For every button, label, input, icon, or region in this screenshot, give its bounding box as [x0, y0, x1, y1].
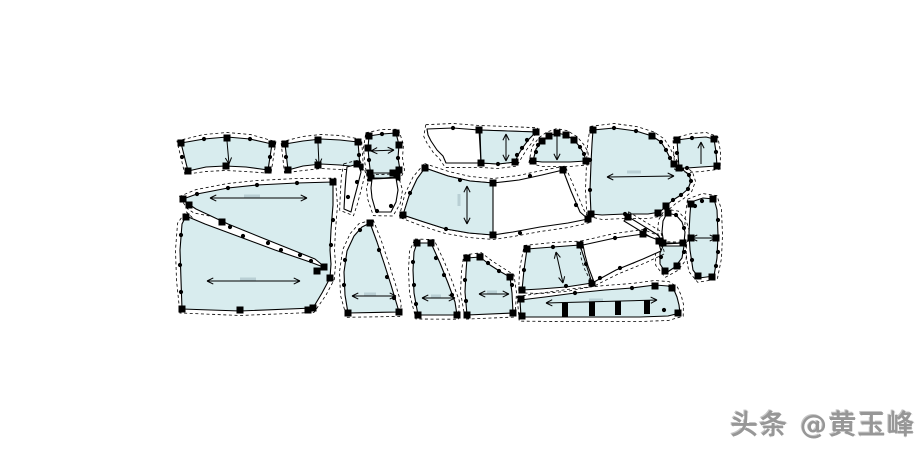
pattern-piece-top-right-small[interactable] — [673, 133, 721, 173]
control-point-handle[interactable] — [560, 167, 567, 174]
control-point-handle[interactable] — [393, 130, 400, 137]
control-point-handle[interactable] — [490, 180, 497, 187]
pattern-piece-hem-band[interactable] — [581, 230, 665, 287]
control-point-handle[interactable] — [695, 273, 702, 280]
piece-outline[interactable] — [285, 139, 360, 170]
control-point-handle[interactable] — [649, 133, 656, 140]
curve-point[interactable] — [375, 209, 379, 213]
control-point-handle[interactable] — [366, 133, 373, 140]
curve-point[interactable] — [510, 283, 514, 287]
pattern-piece-gore-2[interactable] — [409, 239, 461, 319]
curve-point[interactable] — [525, 138, 529, 142]
pattern-piece-gore-1[interactable] — [340, 220, 403, 318]
control-point-handle[interactable] — [478, 160, 485, 167]
control-point-handle[interactable] — [183, 214, 190, 221]
control-point-handle[interactable] — [662, 268, 669, 275]
curve-point[interactable] — [284, 155, 288, 159]
control-point-handle[interactable] — [711, 136, 718, 143]
control-point-handle[interactable] — [265, 167, 272, 174]
control-point-handle[interactable] — [490, 232, 497, 239]
pattern-piece-waistband-left[interactable] — [177, 133, 276, 175]
control-point-handle[interactable] — [415, 312, 422, 319]
control-point-handle[interactable] — [219, 219, 226, 226]
control-point-handle[interactable] — [315, 137, 322, 144]
control-point-handle[interactable] — [476, 127, 483, 134]
control-point-handle[interactable] — [563, 132, 570, 139]
curve-point[interactable] — [564, 284, 568, 288]
control-point-handle[interactable] — [330, 179, 337, 186]
pattern-layout: 头条 @黄玉峰 — [0, 0, 922, 450]
control-point-handle[interactable] — [669, 285, 676, 292]
control-point-handle[interactable] — [315, 162, 322, 169]
piece-label-smudge — [431, 295, 441, 298]
curve-point[interactable] — [630, 286, 634, 290]
curve-point[interactable] — [664, 148, 668, 152]
pattern-piece-front-upper[interactable] — [424, 124, 540, 169]
control-point-handle[interactable] — [519, 287, 526, 294]
control-point-handle[interactable] — [590, 127, 597, 134]
piece-outline[interactable] — [662, 213, 685, 244]
piece-outline[interactable] — [371, 178, 398, 212]
curve-point[interactable] — [486, 261, 490, 265]
control-point-handle[interactable] — [688, 201, 695, 208]
curve-point[interactable] — [329, 243, 333, 247]
control-point-handle[interactable] — [428, 240, 435, 247]
control-point-handle[interactable] — [652, 283, 659, 290]
control-point-handle[interactable] — [539, 138, 546, 145]
curve-point[interactable] — [497, 269, 501, 273]
control-point-handle[interactable] — [327, 275, 334, 282]
piece-subregion — [403, 168, 493, 235]
curve-point[interactable] — [342, 283, 346, 287]
control-point-handle[interactable] — [464, 255, 471, 262]
pattern-canvas — [0, 0, 922, 450]
curve-point[interactable] — [442, 273, 446, 277]
curve-point[interactable] — [180, 155, 184, 159]
control-point-handle[interactable] — [396, 167, 403, 174]
curve-point[interactable] — [682, 226, 686, 230]
curve-point[interactable] — [412, 283, 416, 287]
pattern-piece-gore-3[interactable] — [461, 253, 517, 319]
control-point-handle[interactable] — [178, 140, 185, 147]
control-point-handle[interactable] — [422, 165, 429, 172]
piece-outline[interactable] — [344, 223, 399, 313]
control-point-handle[interactable] — [519, 313, 526, 320]
curve-point[interactable] — [414, 302, 418, 306]
curve-point[interactable] — [573, 291, 577, 295]
control-point-handle[interactable] — [546, 133, 553, 140]
control-point-handle[interactable] — [180, 196, 187, 203]
curve-point[interactable] — [690, 136, 694, 140]
control-point-handle[interactable] — [269, 141, 276, 148]
control-point-handle[interactable] — [314, 268, 321, 275]
control-point-handle[interactable] — [674, 137, 681, 144]
curve-point[interactable] — [659, 255, 663, 259]
control-point-handle[interactable] — [656, 238, 663, 245]
control-point-handle[interactable] — [512, 159, 519, 166]
control-point-handle[interactable] — [674, 263, 681, 270]
curve-point[interactable] — [195, 192, 199, 196]
control-point-handle[interactable] — [507, 274, 514, 281]
curve-point[interactable] — [682, 250, 686, 254]
curve-point[interactable] — [679, 193, 683, 197]
curve-point[interactable] — [522, 268, 526, 272]
curve-point[interactable] — [179, 290, 183, 294]
curve-point[interactable] — [380, 132, 384, 136]
curve-point[interactable] — [634, 129, 638, 133]
control-point-handle[interactable] — [585, 216, 592, 223]
curve-point[interactable] — [202, 137, 206, 141]
control-point-handle[interactable] — [524, 246, 531, 253]
curve-point[interactable] — [358, 228, 362, 232]
control-point-handle[interactable] — [477, 254, 484, 261]
control-point-handle[interactable] — [414, 240, 421, 247]
curve-point[interactable] — [700, 199, 704, 203]
control-point-handle[interactable] — [663, 203, 670, 210]
curve-point[interactable] — [367, 158, 371, 162]
piece-label-smudge — [240, 278, 256, 281]
notch-tick — [615, 301, 621, 315]
control-point-handle[interactable] — [400, 212, 407, 219]
curve-point[interactable] — [574, 203, 578, 207]
curve-point[interactable] — [298, 253, 302, 257]
curve-point[interactable] — [268, 155, 272, 159]
curve-point[interactable] — [687, 173, 691, 177]
control-point-handle[interactable] — [676, 165, 683, 172]
curve-point[interactable] — [578, 145, 582, 149]
piece-label-smudge — [244, 195, 260, 198]
curve-point[interactable] — [551, 245, 555, 249]
curve-point[interactable] — [675, 151, 679, 155]
control-point-handle[interactable] — [571, 137, 578, 144]
curve-point[interactable] — [463, 278, 467, 282]
curve-point[interactable] — [588, 158, 592, 162]
curve-point[interactable] — [534, 150, 538, 154]
curve-point[interactable] — [179, 233, 183, 237]
curve-point[interactable] — [618, 266, 622, 270]
watermark: 头条 @黄玉峰 — [731, 403, 916, 442]
control-point-handle[interactable] — [464, 312, 471, 319]
curve-point[interactable] — [668, 156, 672, 160]
control-point-handle[interactable] — [237, 307, 244, 314]
curve-point[interactable] — [598, 276, 602, 280]
control-point-handle[interactable] — [354, 161, 361, 168]
control-point-handle[interactable] — [396, 142, 403, 149]
curve-point[interactable] — [178, 263, 182, 267]
curve-point[interactable] — [331, 218, 335, 222]
curve-point[interactable] — [408, 191, 412, 195]
pattern-piece-hem-yoke[interactable] — [399, 164, 591, 240]
curve-point[interactable] — [434, 256, 438, 260]
notch-tick — [589, 302, 595, 316]
notch-tick — [644, 300, 650, 314]
curve-point[interactable] — [346, 195, 350, 199]
control-point-handle[interactable] — [530, 158, 537, 165]
curve-point[interactable] — [396, 156, 400, 160]
control-point-handle[interactable] — [510, 310, 517, 317]
curve-point[interactable] — [357, 153, 361, 157]
control-point-handle[interactable] — [285, 167, 292, 174]
curve-point[interactable] — [385, 275, 389, 279]
curve-point[interactable] — [714, 264, 718, 268]
piece-outline[interactable] — [465, 257, 513, 315]
curve-point[interactable] — [685, 166, 689, 170]
curve-point[interactable] — [451, 126, 455, 130]
curve-point[interactable] — [255, 183, 259, 187]
curve-point[interactable] — [686, 187, 690, 191]
curve-point[interactable] — [659, 140, 663, 144]
control-point-handle[interactable] — [321, 264, 328, 271]
curve-point[interactable] — [279, 248, 283, 252]
curve-point[interactable] — [377, 248, 381, 252]
control-point-handle[interactable] — [714, 163, 721, 170]
control-point-handle[interactable] — [640, 231, 647, 238]
curve-point[interactable] — [612, 126, 616, 130]
control-point-handle[interactable] — [655, 210, 662, 217]
curve-point[interactable] — [674, 213, 678, 217]
curve-point[interactable] — [392, 296, 396, 300]
control-point-handle[interactable] — [282, 141, 289, 148]
curve-point[interactable] — [226, 186, 230, 190]
pattern-piece-back-large[interactable] — [176, 178, 338, 315]
curve-point[interactable] — [528, 174, 532, 178]
control-point-handle[interactable] — [396, 309, 403, 316]
piece-label-smudge — [364, 293, 376, 296]
curve-point[interactable] — [613, 236, 617, 240]
control-point-handle[interactable] — [365, 145, 372, 152]
curve-point[interactable] — [714, 150, 718, 154]
curve-point[interactable] — [343, 258, 347, 262]
control-point-handle[interactable] — [345, 310, 352, 317]
curve-point[interactable] — [450, 293, 454, 297]
control-point-handle[interactable] — [186, 202, 193, 209]
control-point-handle[interactable] — [554, 130, 561, 137]
curve-point[interactable] — [411, 260, 415, 264]
control-point-handle[interactable] — [625, 214, 632, 221]
curve-point[interactable] — [520, 146, 524, 150]
curve-point[interactable] — [389, 204, 393, 208]
curve-point[interactable] — [690, 258, 694, 262]
control-point-handle[interactable] — [305, 307, 312, 314]
curve-point[interactable] — [295, 181, 299, 185]
curve-point[interactable] — [266, 241, 270, 245]
control-point-handle[interactable] — [675, 310, 682, 317]
piece-outline[interactable] — [180, 182, 333, 311]
control-point-handle[interactable] — [355, 139, 362, 146]
notch-tick — [562, 303, 568, 317]
curve-point[interactable] — [309, 259, 313, 263]
piece-label-smudge — [487, 291, 497, 294]
piece-outline[interactable] — [413, 243, 457, 315]
control-point-handle[interactable] — [224, 135, 231, 142]
curve-point[interactable] — [582, 152, 586, 156]
curve-point[interactable] — [662, 308, 666, 312]
piece-outline[interactable] — [583, 234, 661, 282]
curve-point[interactable] — [248, 137, 252, 141]
curve-point[interactable] — [716, 218, 720, 222]
curve-point[interactable] — [464, 299, 468, 303]
curve-point[interactable] — [496, 162, 500, 166]
curve-point[interactable] — [518, 231, 522, 235]
piece-label-smudge — [458, 194, 461, 206]
curve-point[interactable] — [444, 227, 448, 231]
control-point-handle[interactable] — [533, 129, 540, 136]
curve-point[interactable] — [515, 153, 519, 157]
control-point-handle[interactable] — [709, 274, 716, 281]
curve-point[interactable] — [241, 234, 245, 238]
piece-label-smudge — [627, 171, 641, 174]
control-point-handle[interactable] — [665, 210, 672, 217]
curve-point[interactable] — [716, 250, 720, 254]
curve-point[interactable] — [671, 198, 675, 202]
control-point-handle[interactable] — [518, 296, 525, 303]
curve-point[interactable] — [689, 179, 693, 183]
control-point-handle[interactable] — [367, 220, 374, 227]
control-point-handle[interactable] — [454, 312, 461, 319]
control-point-handle[interactable] — [179, 306, 186, 313]
control-point-handle[interactable] — [710, 196, 717, 203]
pattern-piece-right-tall[interactable] — [685, 194, 723, 283]
curve-point[interactable] — [228, 225, 232, 229]
piece-outline[interactable] — [344, 164, 361, 212]
control-point-handle[interactable] — [185, 168, 192, 175]
piece-outline[interactable] — [522, 245, 592, 290]
curve-point[interactable] — [355, 180, 359, 184]
curve-point[interactable] — [458, 178, 462, 182]
control-point-handle[interactable] — [713, 235, 720, 242]
control-point-handle[interactable] — [223, 163, 230, 170]
curve-point[interactable] — [588, 188, 592, 192]
